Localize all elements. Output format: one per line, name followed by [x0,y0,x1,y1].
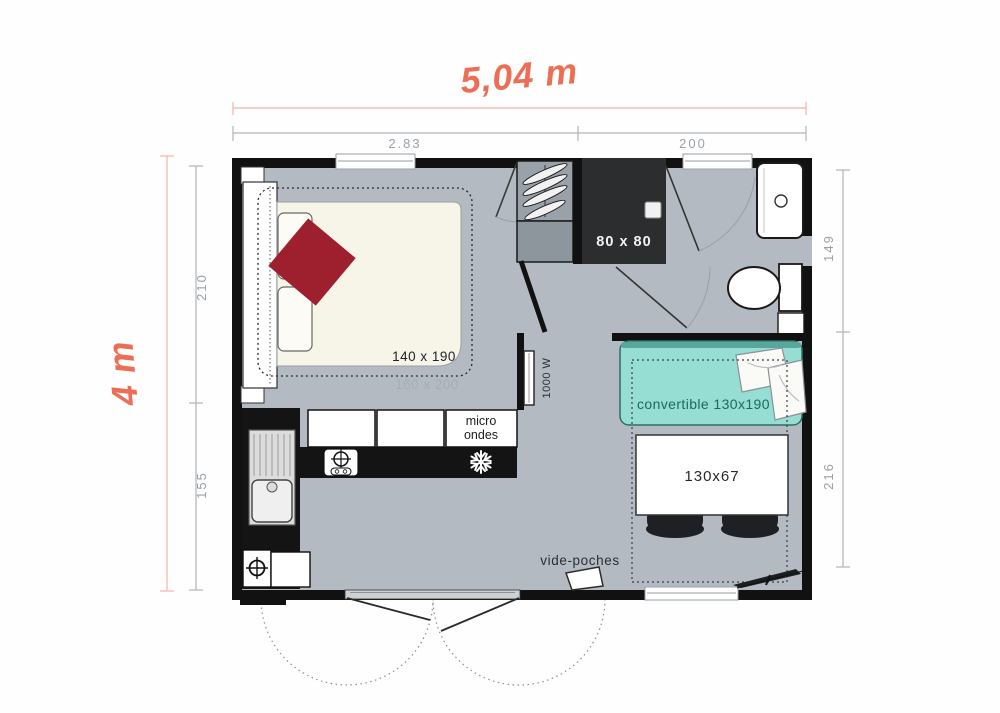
microwave-label-line2: ondes [464,428,498,442]
entry-door-swing-arcs [261,599,605,685]
dimension-top-segments [233,126,806,141]
bed-size-label: 140 x 190 [392,349,456,364]
window [645,587,738,600]
headboard-window [243,182,277,388]
microwave-cabinet: micro ondes [446,410,517,447]
sofa-bed: convertible 130x190 [620,341,806,425]
toilet [728,264,802,311]
floorplan-canvas: 5,04 m 2.83 200 4 m 210 155 149 216 [0,0,1000,713]
wardrobe [517,161,573,262]
dimension-left-total: 4 m [99,156,174,591]
gas-valve-icon [243,550,271,587]
dim-top-left: 2.83 [388,136,421,151]
right-wall-window [801,236,812,266]
table-size-label: 130x67 [684,468,739,485]
dim-right-bottom: 216 [821,462,836,490]
dim-left-top: 210 [194,273,209,301]
bed-zone-size-label: 160 x 200 [395,377,459,392]
kitchen-cabinet [308,410,375,447]
toilet-bowl [728,267,780,309]
microwave-label-line1: micro [466,414,497,428]
hob-icon [324,449,358,476]
wall [573,158,582,264]
kitchen-cabinet [271,552,310,587]
dining-table: 130x67 [636,435,788,515]
kitchen-sink [249,430,295,525]
washbasin [757,163,803,238]
shower-drain [645,202,661,218]
entry-step [240,596,286,605]
kitchen-cabinet [377,410,444,447]
dimension-top-total: 5,04 m [233,50,806,115]
dim-left-bottom: 155 [194,471,209,499]
heater-power-label: 1000 W [541,357,553,398]
window [683,154,752,169]
dimension-left-segments [189,166,203,590]
dim-right-top: 149 [821,234,836,262]
tray-label: vide-poches [540,553,619,568]
total-width-label: 5,04 m [459,50,580,101]
shower-size-label: 80 x 80 [596,234,651,250]
window [336,154,415,169]
wall [612,333,812,341]
entry-door-leaf [441,598,519,631]
total-height-label: 4 m [99,339,146,408]
dim-top-right: 200 [679,136,707,151]
toilet-tank [779,264,802,311]
wall [517,333,524,410]
entry-door-leaf [347,598,430,620]
floorplan-svg: 5,04 m 2.83 200 4 m 210 155 149 216 [0,0,1000,713]
sofa-size-label: convertible 130x190 [637,396,770,412]
entry-door [345,590,520,631]
dimension-right-segments [836,170,850,567]
shower: 80 x 80 [582,158,666,264]
